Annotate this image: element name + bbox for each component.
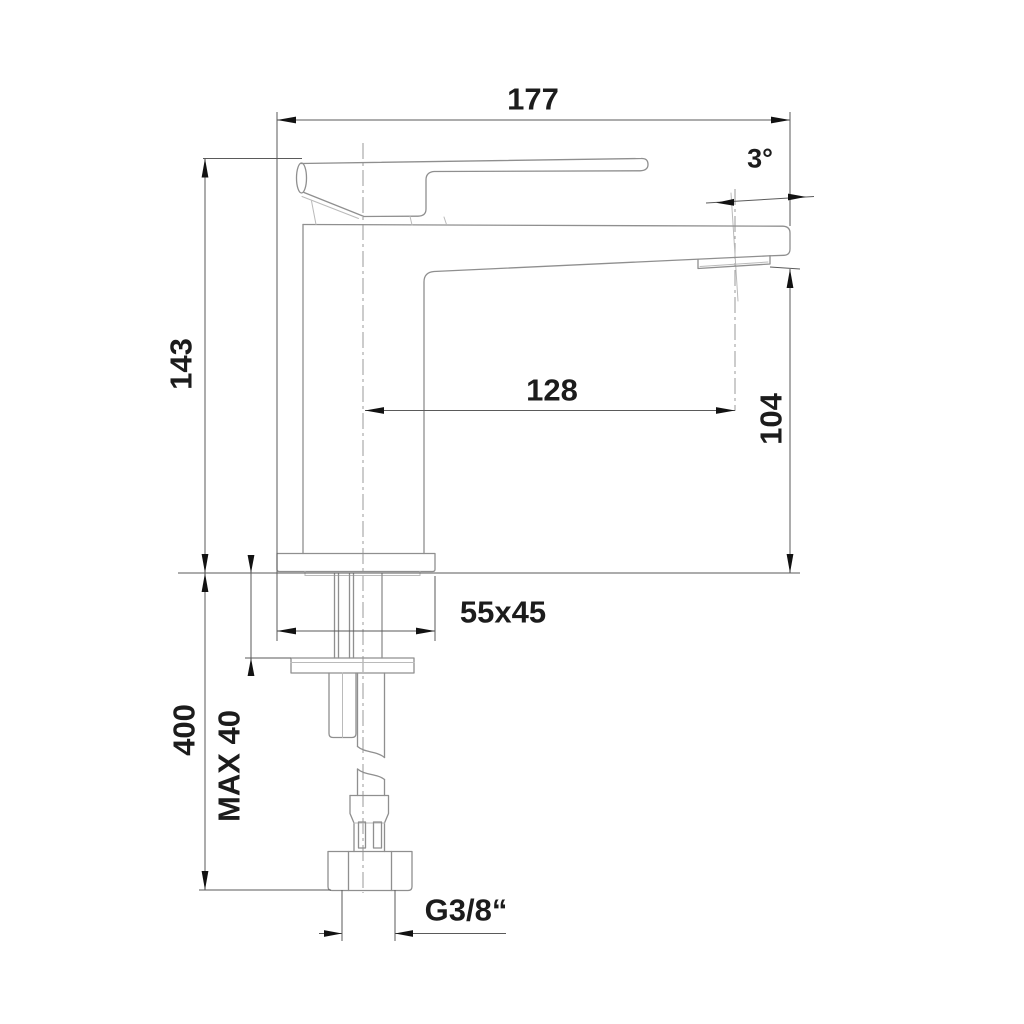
dimension-spout-angle: [706, 194, 814, 206]
drawing-canvas: [0, 0, 1024, 1024]
faucet-outline: [277, 158, 790, 890]
hose-ferrule: [350, 796, 389, 852]
technical-drawing-page: 177 3° 143 128 104 55x45 MAX 40 400 G3/8…: [0, 0, 1024, 1024]
dim-label-spout-reach: 128: [526, 375, 578, 406]
dim-label-max-deck-thickness: MAX 40: [214, 710, 245, 822]
handle-seams: [302, 197, 768, 267]
mounting-washer: [291, 658, 414, 673]
dim-label-spout-angle: 3°: [747, 146, 773, 173]
dim-label-base-size: 55x45: [460, 597, 546, 628]
dimension-spout-reach: [365, 407, 735, 414]
dim-label-below-deck-length: 400: [169, 704, 200, 756]
dimension-height-above-deck: [202, 159, 302, 574]
dimension-base-size: [277, 576, 435, 641]
dim-label-thread-size: G3/8“: [425, 895, 508, 926]
dim-label-outlet-height: 104: [756, 393, 787, 445]
handle-end-cap: [297, 163, 307, 193]
dimension-below-deck-length: [202, 573, 209, 890]
mounting-studs: [335, 574, 383, 659]
dim-label-height-above-deck: 143: [166, 338, 197, 390]
dim-label-overall-length: 177: [507, 84, 559, 115]
base-plate: [277, 554, 435, 572]
supply-hose: [358, 673, 385, 796]
hex-nut: [328, 852, 412, 891]
handle-lever: [301, 158, 648, 216]
